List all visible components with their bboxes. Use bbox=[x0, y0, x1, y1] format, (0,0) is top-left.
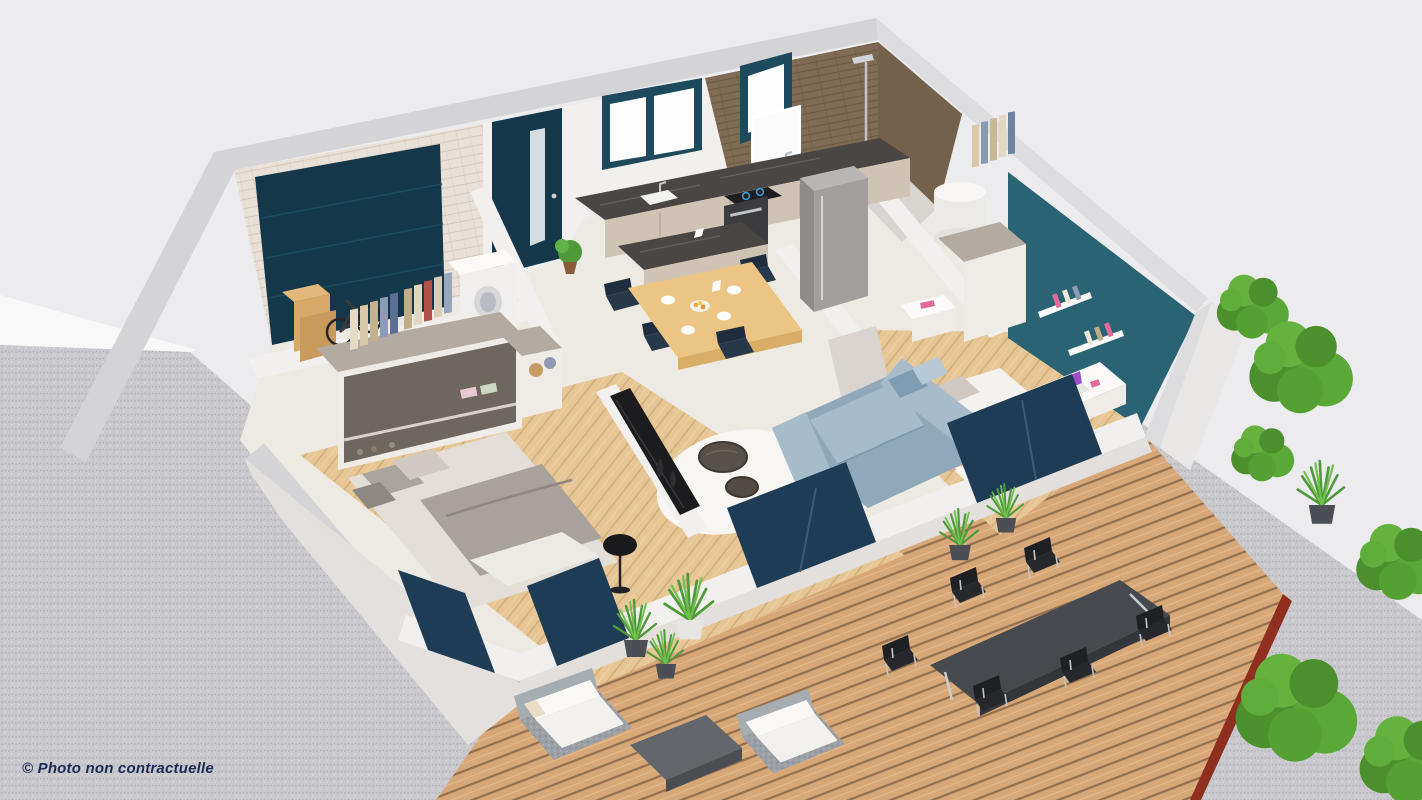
fridge bbox=[800, 166, 868, 312]
bag bbox=[544, 357, 556, 369]
scene-canvas bbox=[0, 0, 1422, 800]
door-handle bbox=[552, 194, 557, 199]
bag bbox=[529, 363, 543, 377]
floor-plan-render: © Photo non contractuelle bbox=[0, 0, 1422, 800]
copyright-caption: © Photo non contractuelle bbox=[22, 760, 214, 777]
